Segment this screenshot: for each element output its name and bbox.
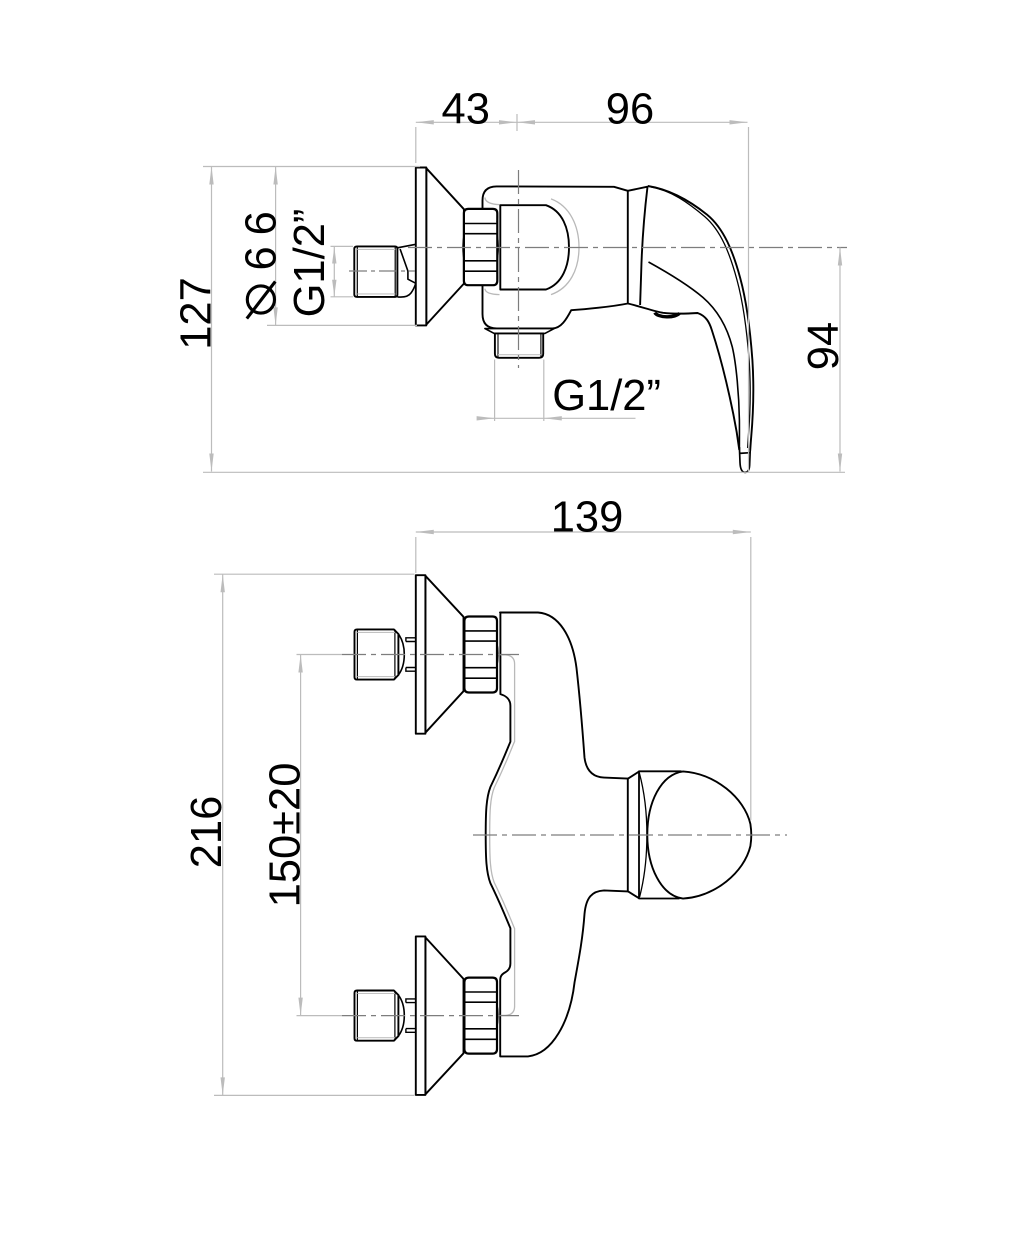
svg-text:216: 216 xyxy=(183,796,231,869)
svg-text:139: 139 xyxy=(551,494,624,542)
svg-text:66: 66 xyxy=(238,200,286,270)
svg-text:43: 43 xyxy=(442,86,490,134)
svg-text:G1/2”: G1/2” xyxy=(552,372,661,420)
svg-text:94: 94 xyxy=(800,322,848,370)
svg-text:150±20: 150±20 xyxy=(262,763,310,908)
svg-text:96: 96 xyxy=(606,86,654,134)
svg-text:G1/2”: G1/2” xyxy=(286,209,334,318)
svg-text:127: 127 xyxy=(173,277,221,350)
